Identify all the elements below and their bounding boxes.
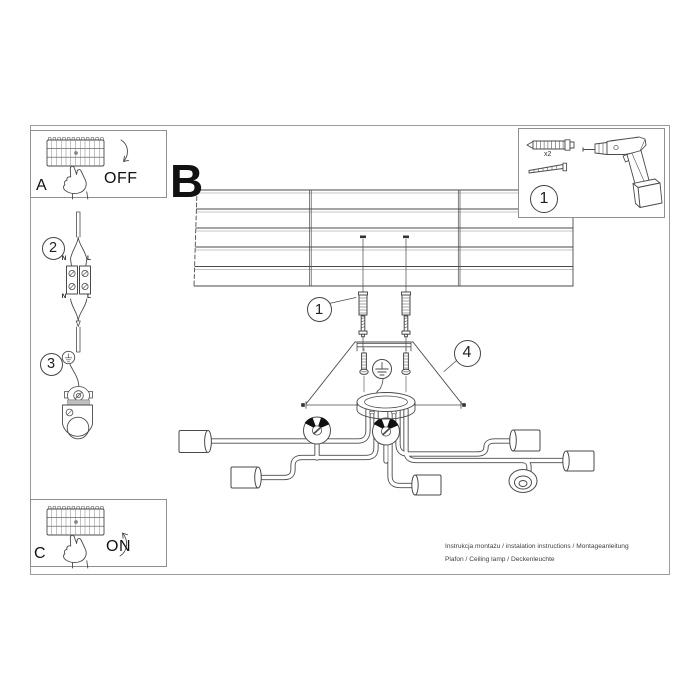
- section-b-label: B: [170, 158, 203, 204]
- wire-label-n-bottom: N: [59, 293, 69, 300]
- step1-leader-line: [329, 298, 356, 304]
- drill-mark-left: [360, 236, 366, 239]
- ground-bracket-illustration: [62, 351, 92, 439]
- drill-mark-right: [403, 236, 409, 239]
- drill-icon: [583, 137, 662, 208]
- panel-a-label: A: [36, 177, 47, 195]
- anchor-screw-pair: [329, 292, 411, 337]
- cover-screw-right: [402, 353, 410, 374]
- wire-label-l-bottom: L: [84, 293, 94, 300]
- screw-icon: [529, 163, 567, 173]
- wire-connection-illustration: [67, 212, 91, 352]
- panel-a-breaker-off: [30, 130, 167, 198]
- ground-symbol: [373, 360, 392, 379]
- step-number-cover: 4: [454, 340, 481, 367]
- downward-socket: [509, 470, 537, 493]
- wall-anchor-icon: [527, 140, 574, 150]
- power-off-label: OFF: [104, 170, 138, 188]
- anchor-quantity: x2: [544, 151, 551, 158]
- step-number-ground: 3: [40, 353, 63, 376]
- panel-c-breaker-on: [30, 499, 167, 567]
- wire-label-l-top: L: [84, 255, 94, 262]
- power-on-label: ON: [106, 538, 131, 556]
- pointing-hand-icon: [64, 166, 87, 193]
- step-number-drill-marks: 1: [307, 297, 332, 322]
- fuse-box-icon: [47, 138, 104, 166]
- panel-c-label: C: [34, 545, 46, 563]
- arrow-down-icon: [121, 140, 129, 162]
- footer-line-2: Plafon / Ceiling lamp / Deckenleuchte: [445, 553, 629, 566]
- step4-leader-line: [444, 361, 456, 372]
- ceiling-lamp-illustration: [179, 393, 594, 496]
- cover-screw-left: [360, 353, 368, 374]
- step-number-tools: 1: [530, 185, 558, 213]
- wire-label-n-top: N: [59, 255, 69, 262]
- footer-line-1: Instrukcja montażu / instalation instruc…: [445, 540, 629, 553]
- ceiling-planks-illustration: [194, 190, 573, 351]
- fuse-box-icon: [47, 507, 104, 535]
- diagram-canvas: [0, 0, 700, 700]
- pointing-hand-icon: [64, 535, 87, 562]
- footer-text: Instrukcja montażu / instalation instruc…: [445, 540, 629, 566]
- instruction-sheet: A OFF C ON: [0, 0, 700, 700]
- ground-wire: [376, 379, 383, 395]
